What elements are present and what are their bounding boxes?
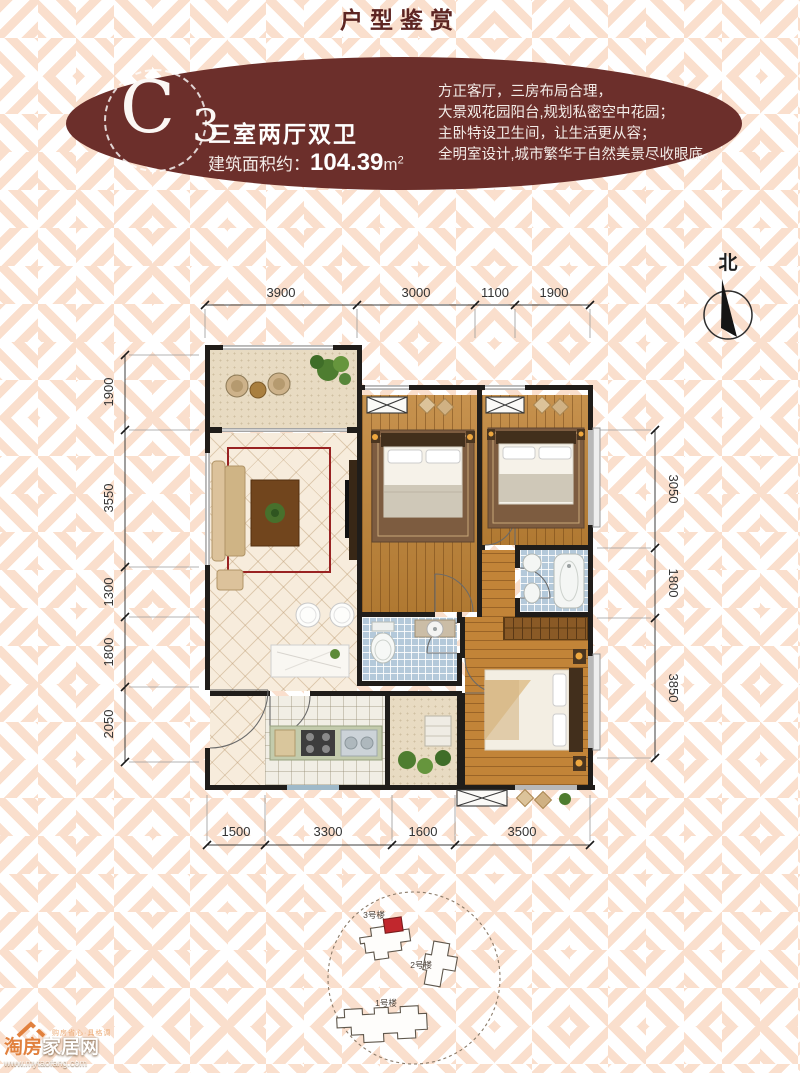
building-3 <box>358 916 413 962</box>
kitchen-furniture <box>270 726 382 760</box>
dimensions-right: 3050 1800 3850 <box>597 426 681 762</box>
dimensions-top: 3900 3000 1100 1900 <box>201 285 594 338</box>
area-exponent: 2 <box>398 154 404 166</box>
siteplan: 3号楼 2号楼 1号楼 <box>300 882 526 1072</box>
dim-label: 3500 <box>508 824 537 839</box>
dim-label: 1300 <box>101 578 116 607</box>
dim-label: 3900 <box>267 285 296 300</box>
watermark-url: www.mytaofang.com <box>4 1058 164 1068</box>
dim-label: 2050 <box>101 710 116 739</box>
description-line: 主卧特设卫生间，让生活更从容； <box>438 124 740 145</box>
dim-label: 1100 <box>481 285 509 300</box>
description-line: 大景观花园阳台,规划私密空中花园； <box>438 103 740 124</box>
unit-description: 方正客厅，三房布局合理， 大景观花园阳台,规划私密空中花园； 主卧特设卫生间，让… <box>438 82 740 166</box>
dim-label: 3850 <box>666 674 681 703</box>
watermark: 购房省心·具格调 淘房家居网 www.mytaofang.com <box>4 1020 164 1068</box>
building-label: 1号楼 <box>375 998 397 1008</box>
dimensions-left: 1900 3550 1300 1800 2050 <box>101 351 199 766</box>
north-label: 北 <box>698 248 758 275</box>
shared-bathroom-fixtures <box>371 620 455 663</box>
dim-label: 1500 <box>222 824 251 839</box>
description-line: 全明室设计,城市繁华于自然美景尽收眼底。 <box>438 145 740 166</box>
dim-label: 1800 <box>666 569 681 598</box>
area-label: 建筑面积约： <box>208 155 310 174</box>
area-value: 104.39 <box>310 149 383 176</box>
unit-layout-label: 三室两厅双卫 <box>208 115 358 149</box>
compass: 北 <box>698 248 758 344</box>
building-label: 3号楼 <box>363 910 385 920</box>
area-unit: m <box>383 155 397 174</box>
watermark-brand: 淘房家居网 <box>4 1038 164 1058</box>
dim-label: 1600 <box>409 824 438 839</box>
tv-cabinet <box>349 460 357 560</box>
page: 户型鉴赏 C 3 三室两厅双卫 建筑面积约：104.39m2 方正客厅，三房布局… <box>0 0 800 1073</box>
unit-letter: C <box>120 71 175 143</box>
dim-label: 3300 <box>314 824 343 839</box>
master-bedroom-furniture <box>485 628 586 808</box>
unit-badge: C 3 三室两厅双卫 建筑面积约：104.39m2 方正客厅，三房布局合理， 大… <box>66 57 742 190</box>
dim-label: 1900 <box>540 285 569 300</box>
brand-secondary: 家居网 <box>42 1037 99 1058</box>
tv <box>345 480 349 538</box>
floorplan: 3900 3000 1100 1900 <box>95 278 685 863</box>
page-title: 户型鉴赏 <box>0 1 800 35</box>
north-arrow-icon <box>698 275 758 345</box>
building-label: 2号楼 <box>410 960 432 970</box>
balcony-furniture <box>226 355 351 398</box>
living-room-furniture <box>212 448 357 677</box>
dim-label: 3050 <box>666 475 681 504</box>
master-bathroom-fixtures <box>523 554 584 608</box>
description-line: 方正客厅，三房布局合理， <box>438 82 740 103</box>
watermark-tagline: 购房省心·具格调 <box>52 1028 111 1038</box>
flex-room-items <box>398 716 451 774</box>
dim-label: 1800 <box>101 638 116 667</box>
floorplan-drawing: 3900 3000 1100 1900 <box>95 278 685 863</box>
dimensions-bottom: 1500 3300 1600 3500 <box>203 795 594 849</box>
dim-label: 3000 <box>402 285 431 300</box>
building-1 <box>336 1005 428 1044</box>
unit-area: 建筑面积约：104.39m2 <box>208 149 404 177</box>
bedroom2-furniture <box>487 397 585 528</box>
highlighted-unit <box>383 917 403 933</box>
roof-icon <box>16 1020 56 1038</box>
bedroom1-furniture <box>371 397 475 542</box>
dim-label: 3550 <box>101 484 116 513</box>
brand-primary: 淘房 <box>4 1037 42 1058</box>
dim-label: 1900 <box>101 378 116 407</box>
